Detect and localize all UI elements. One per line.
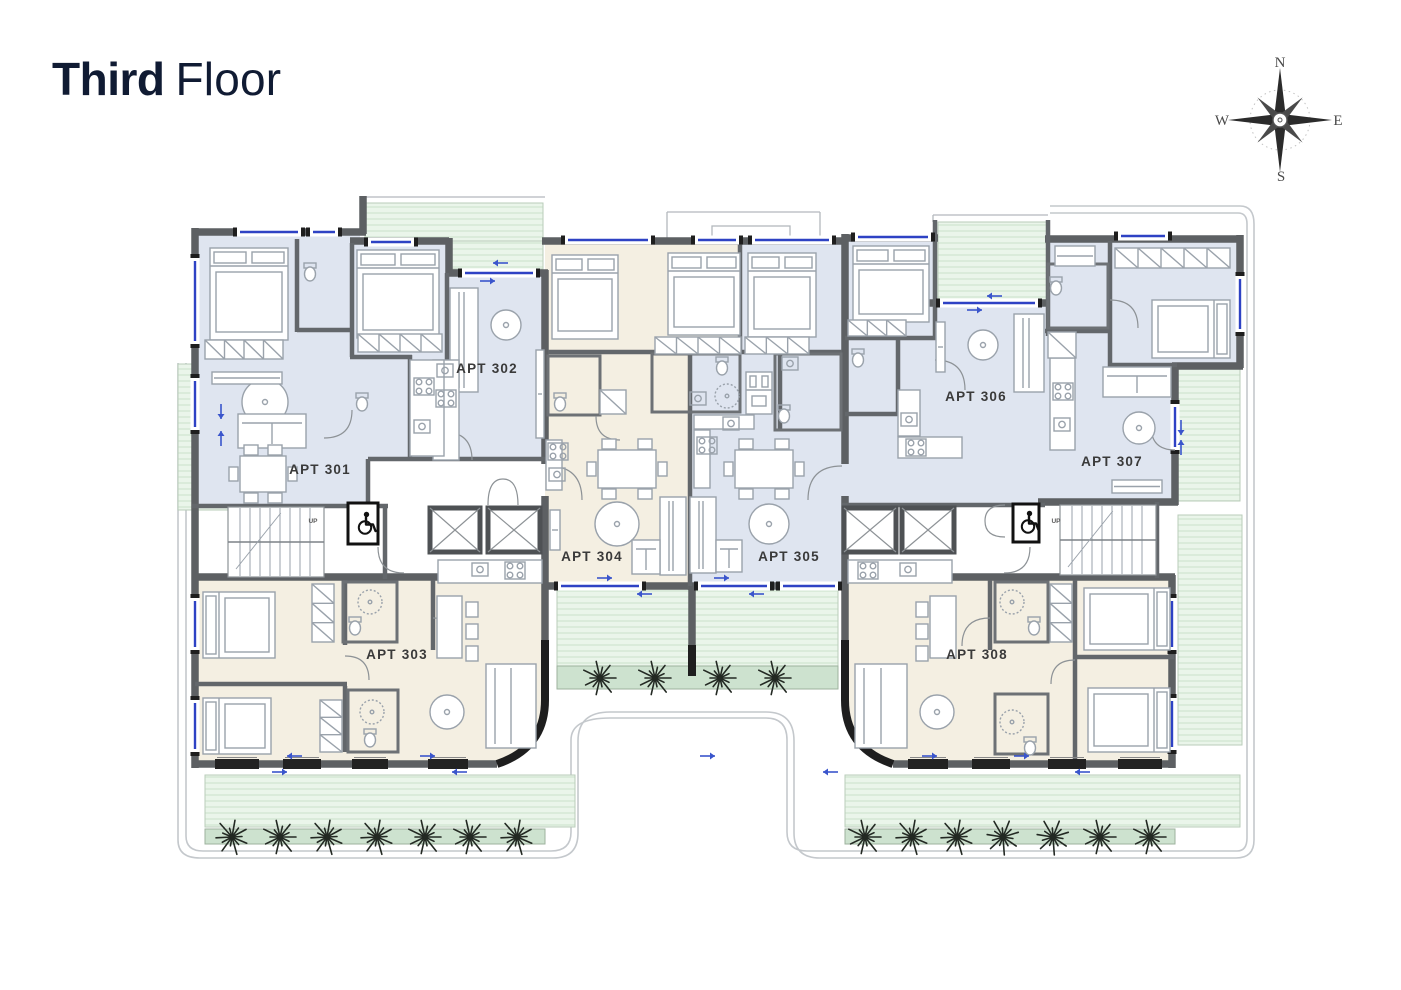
compass-south-label: S bbox=[1277, 169, 1285, 185]
floor-plan-drawing: APT 301APT 302APT 303APT 304APT 305APT 3… bbox=[0, 0, 1401, 990]
apartment-label-305: APT 305 bbox=[758, 549, 820, 564]
floor-plan-page: ThirdFloor bbox=[0, 0, 1401, 990]
apartment-label-303: APT 303 bbox=[366, 647, 428, 662]
compass-east-label: E bbox=[1333, 113, 1342, 129]
compass-north-label: N bbox=[1275, 55, 1286, 71]
apartment-label-301: APT 301 bbox=[289, 462, 351, 477]
apartment-label-302: APT 302 bbox=[456, 361, 518, 376]
compass-west-label: W bbox=[1215, 113, 1230, 129]
stairs-up-label-2: UP bbox=[1051, 518, 1061, 525]
compass-rose: N E S W bbox=[1215, 55, 1343, 185]
apartment-label-307: APT 307 bbox=[1081, 454, 1143, 469]
apartment-label-306: APT 306 bbox=[945, 389, 1007, 404]
apartment-label-308: APT 308 bbox=[946, 647, 1008, 662]
apartment-label-304: APT 304 bbox=[561, 549, 623, 564]
stairs-up-label-1: UP bbox=[308, 518, 318, 525]
